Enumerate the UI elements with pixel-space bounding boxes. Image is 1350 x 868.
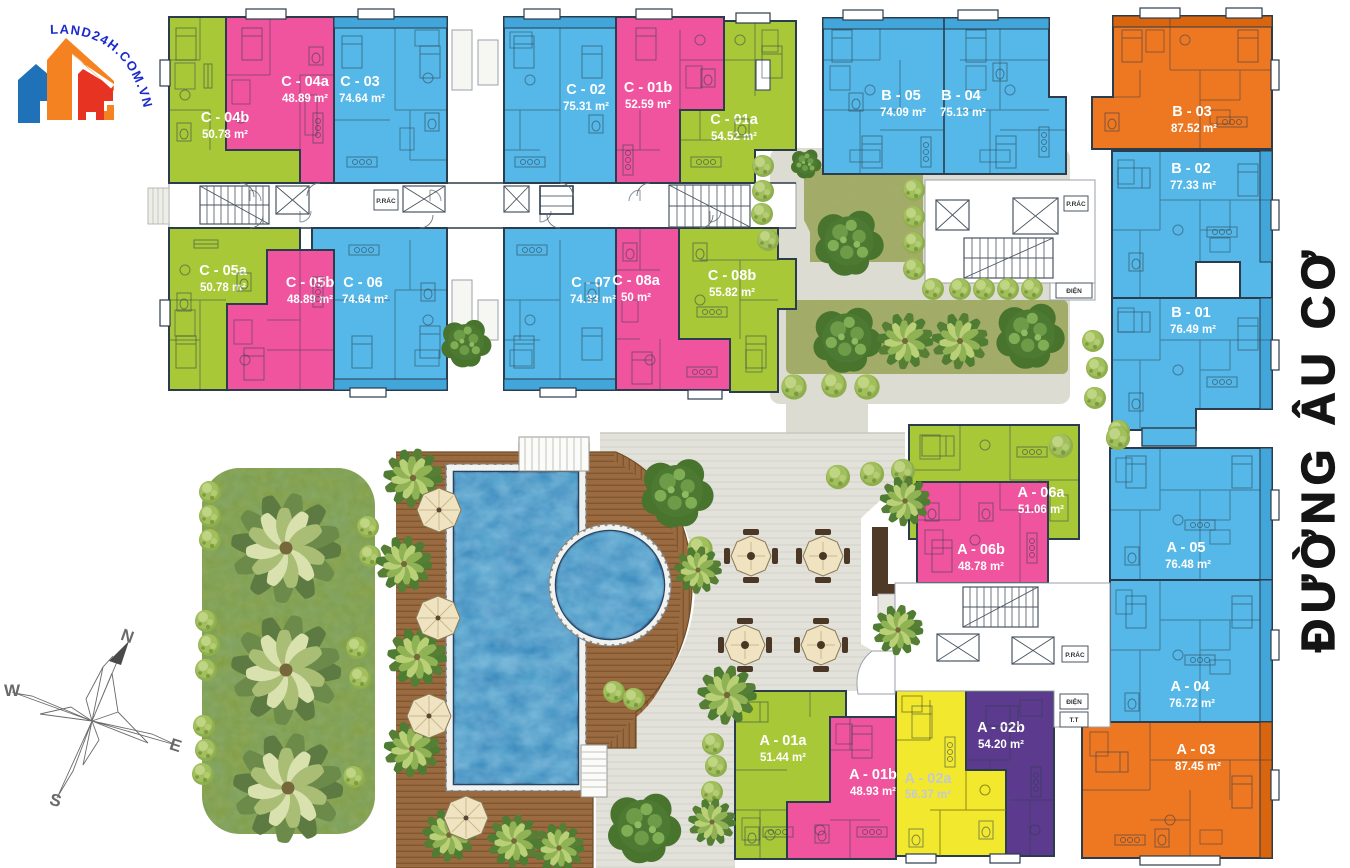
svg-text:74.09 m²: 74.09 m² — [880, 107, 926, 119]
svg-text:C - 02: C - 02 — [566, 82, 606, 98]
svg-text:C - 04a: C - 04a — [281, 74, 329, 90]
svg-text:51.44 m²: 51.44 m² — [760, 752, 806, 764]
svg-text:A - 01b: A - 01b — [849, 767, 897, 783]
svg-text:76.49 m²: 76.49 m² — [1170, 324, 1216, 336]
svg-text:52.59 m²: 52.59 m² — [625, 99, 671, 111]
svg-text:54.52 m²: 54.52 m² — [711, 131, 757, 143]
svg-text:48.89 m²: 48.89 m² — [287, 294, 333, 306]
svg-text:B - 03: B - 03 — [1172, 104, 1212, 120]
svg-text:W: W — [4, 681, 21, 700]
svg-text:C - 05a: C - 05a — [199, 263, 247, 279]
svg-text:74.64 m²: 74.64 m² — [342, 294, 388, 306]
svg-text:A - 01a: A - 01a — [759, 733, 807, 749]
svg-text:74.64 m²: 74.64 m² — [339, 93, 385, 105]
svg-text:48.78 m²: 48.78 m² — [958, 561, 1004, 573]
svg-text:B - 04: B - 04 — [941, 88, 981, 104]
svg-text:50 m²: 50 m² — [621, 292, 651, 304]
svg-text:76.72 m²: 76.72 m² — [1169, 698, 1215, 710]
svg-text:87.52 m²: 87.52 m² — [1171, 123, 1217, 135]
svg-text:C - 01a: C - 01a — [710, 112, 758, 128]
svg-text:C - 01b: C - 01b — [624, 80, 672, 96]
svg-text:B - 01: B - 01 — [1171, 305, 1211, 321]
svg-text:A - 06a: A - 06a — [1017, 485, 1065, 501]
svg-text:87.45 m²: 87.45 m² — [1175, 761, 1221, 773]
svg-text:ĐƯỜNG ÂU CƠ: ĐƯỜNG ÂU CƠ — [1292, 248, 1344, 652]
svg-text:50.78 m²: 50.78 m² — [202, 129, 248, 141]
svg-text:A - 04: A - 04 — [1171, 679, 1210, 695]
svg-text:A - 02a: A - 02a — [904, 771, 952, 787]
svg-text:75.13 m²: 75.13 m² — [940, 107, 986, 119]
svg-text:76.48 m²: 76.48 m² — [1165, 559, 1211, 571]
svg-text:C - 05b: C - 05b — [286, 275, 334, 291]
svg-text:74.33 m²: 74.33 m² — [570, 294, 616, 306]
svg-text:B - 02: B - 02 — [1171, 161, 1211, 177]
svg-text:P.RÁC: P.RÁC — [1066, 199, 1086, 208]
svg-text:ĐIỆN: ĐIỆN — [1066, 286, 1082, 295]
svg-text:C - 03: C - 03 — [340, 74, 380, 90]
svg-text:C - 06: C - 06 — [343, 275, 383, 291]
svg-text:75.31 m²: 75.31 m² — [563, 101, 609, 113]
svg-text:ĐIỆN: ĐIỆN — [1066, 697, 1082, 706]
svg-text:48.93 m²: 48.93 m² — [850, 786, 896, 798]
svg-text:56.37 m²: 56.37 m² — [905, 789, 951, 801]
svg-text:48.89 m²: 48.89 m² — [282, 93, 328, 105]
svg-text:54.20 m²: 54.20 m² — [978, 739, 1024, 751]
svg-text:C - 08a: C - 08a — [612, 273, 660, 289]
svg-text:55.82 m²: 55.82 m² — [709, 287, 755, 299]
svg-text:C - 04b: C - 04b — [201, 110, 249, 126]
svg-text:C - 08b: C - 08b — [708, 268, 756, 284]
svg-text:B - 05: B - 05 — [881, 88, 921, 104]
svg-text:P.RÁC: P.RÁC — [376, 196, 396, 205]
svg-text:A - 03: A - 03 — [1177, 742, 1216, 758]
svg-text:50.78 m²: 50.78 m² — [200, 282, 246, 294]
svg-text:A - 05: A - 05 — [1167, 540, 1206, 556]
svg-text:77.33 m²: 77.33 m² — [1170, 180, 1216, 192]
svg-text:T.T: T.T — [1069, 717, 1078, 724]
svg-text:A - 06b: A - 06b — [957, 542, 1005, 558]
svg-text:51.06 m²: 51.06 m² — [1018, 504, 1064, 516]
svg-text:P.RÁC: P.RÁC — [1065, 650, 1085, 659]
